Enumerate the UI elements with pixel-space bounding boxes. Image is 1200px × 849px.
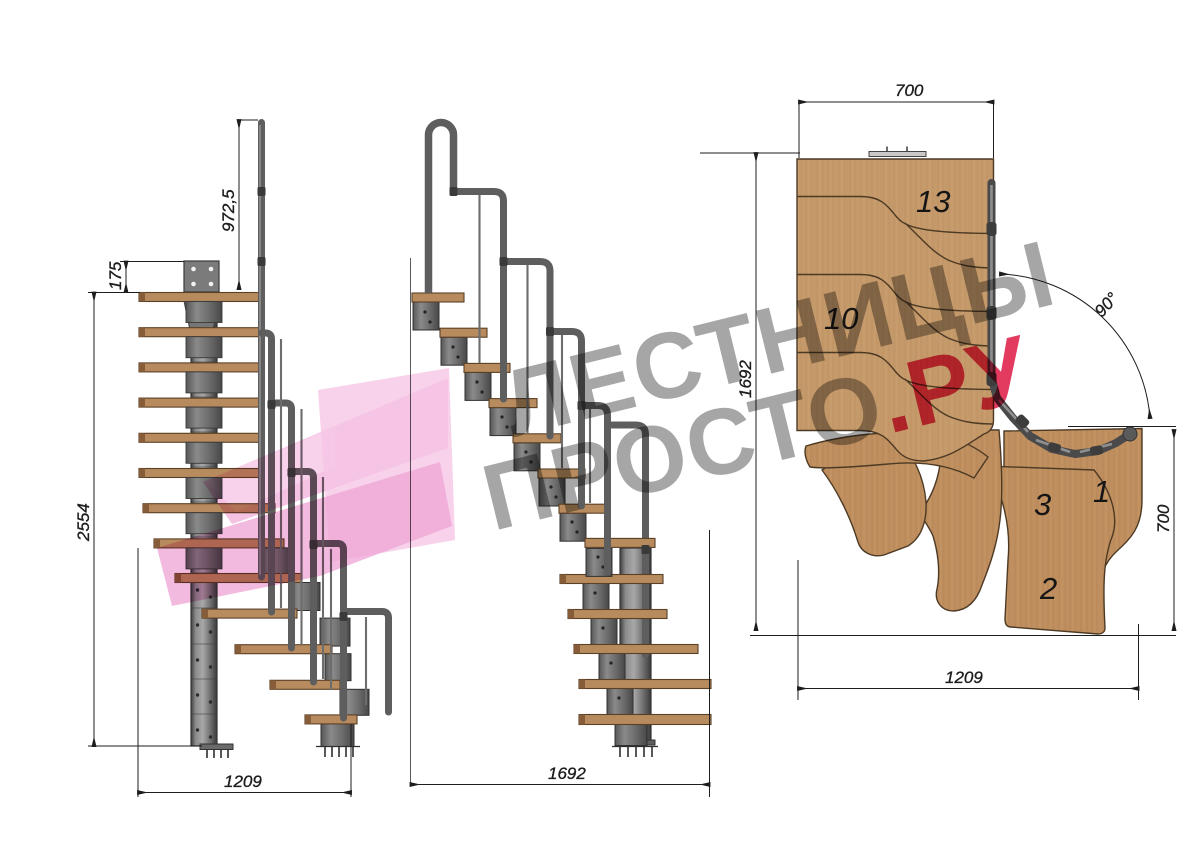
svg-text:3: 3 <box>1034 487 1051 522</box>
svg-text:700: 700 <box>895 81 924 100</box>
svg-text:972,5: 972,5 <box>219 189 238 232</box>
svg-text:1: 1 <box>1093 474 1110 509</box>
svg-text:2: 2 <box>1039 571 1057 606</box>
svg-text:1209: 1209 <box>945 668 983 687</box>
svg-text:13: 13 <box>916 184 950 219</box>
svg-text:175: 175 <box>106 261 125 290</box>
svg-text:1692: 1692 <box>548 764 586 783</box>
svg-text:1209: 1209 <box>224 772 262 791</box>
svg-text:2554: 2554 <box>74 503 93 542</box>
svg-text:700: 700 <box>1154 504 1173 533</box>
